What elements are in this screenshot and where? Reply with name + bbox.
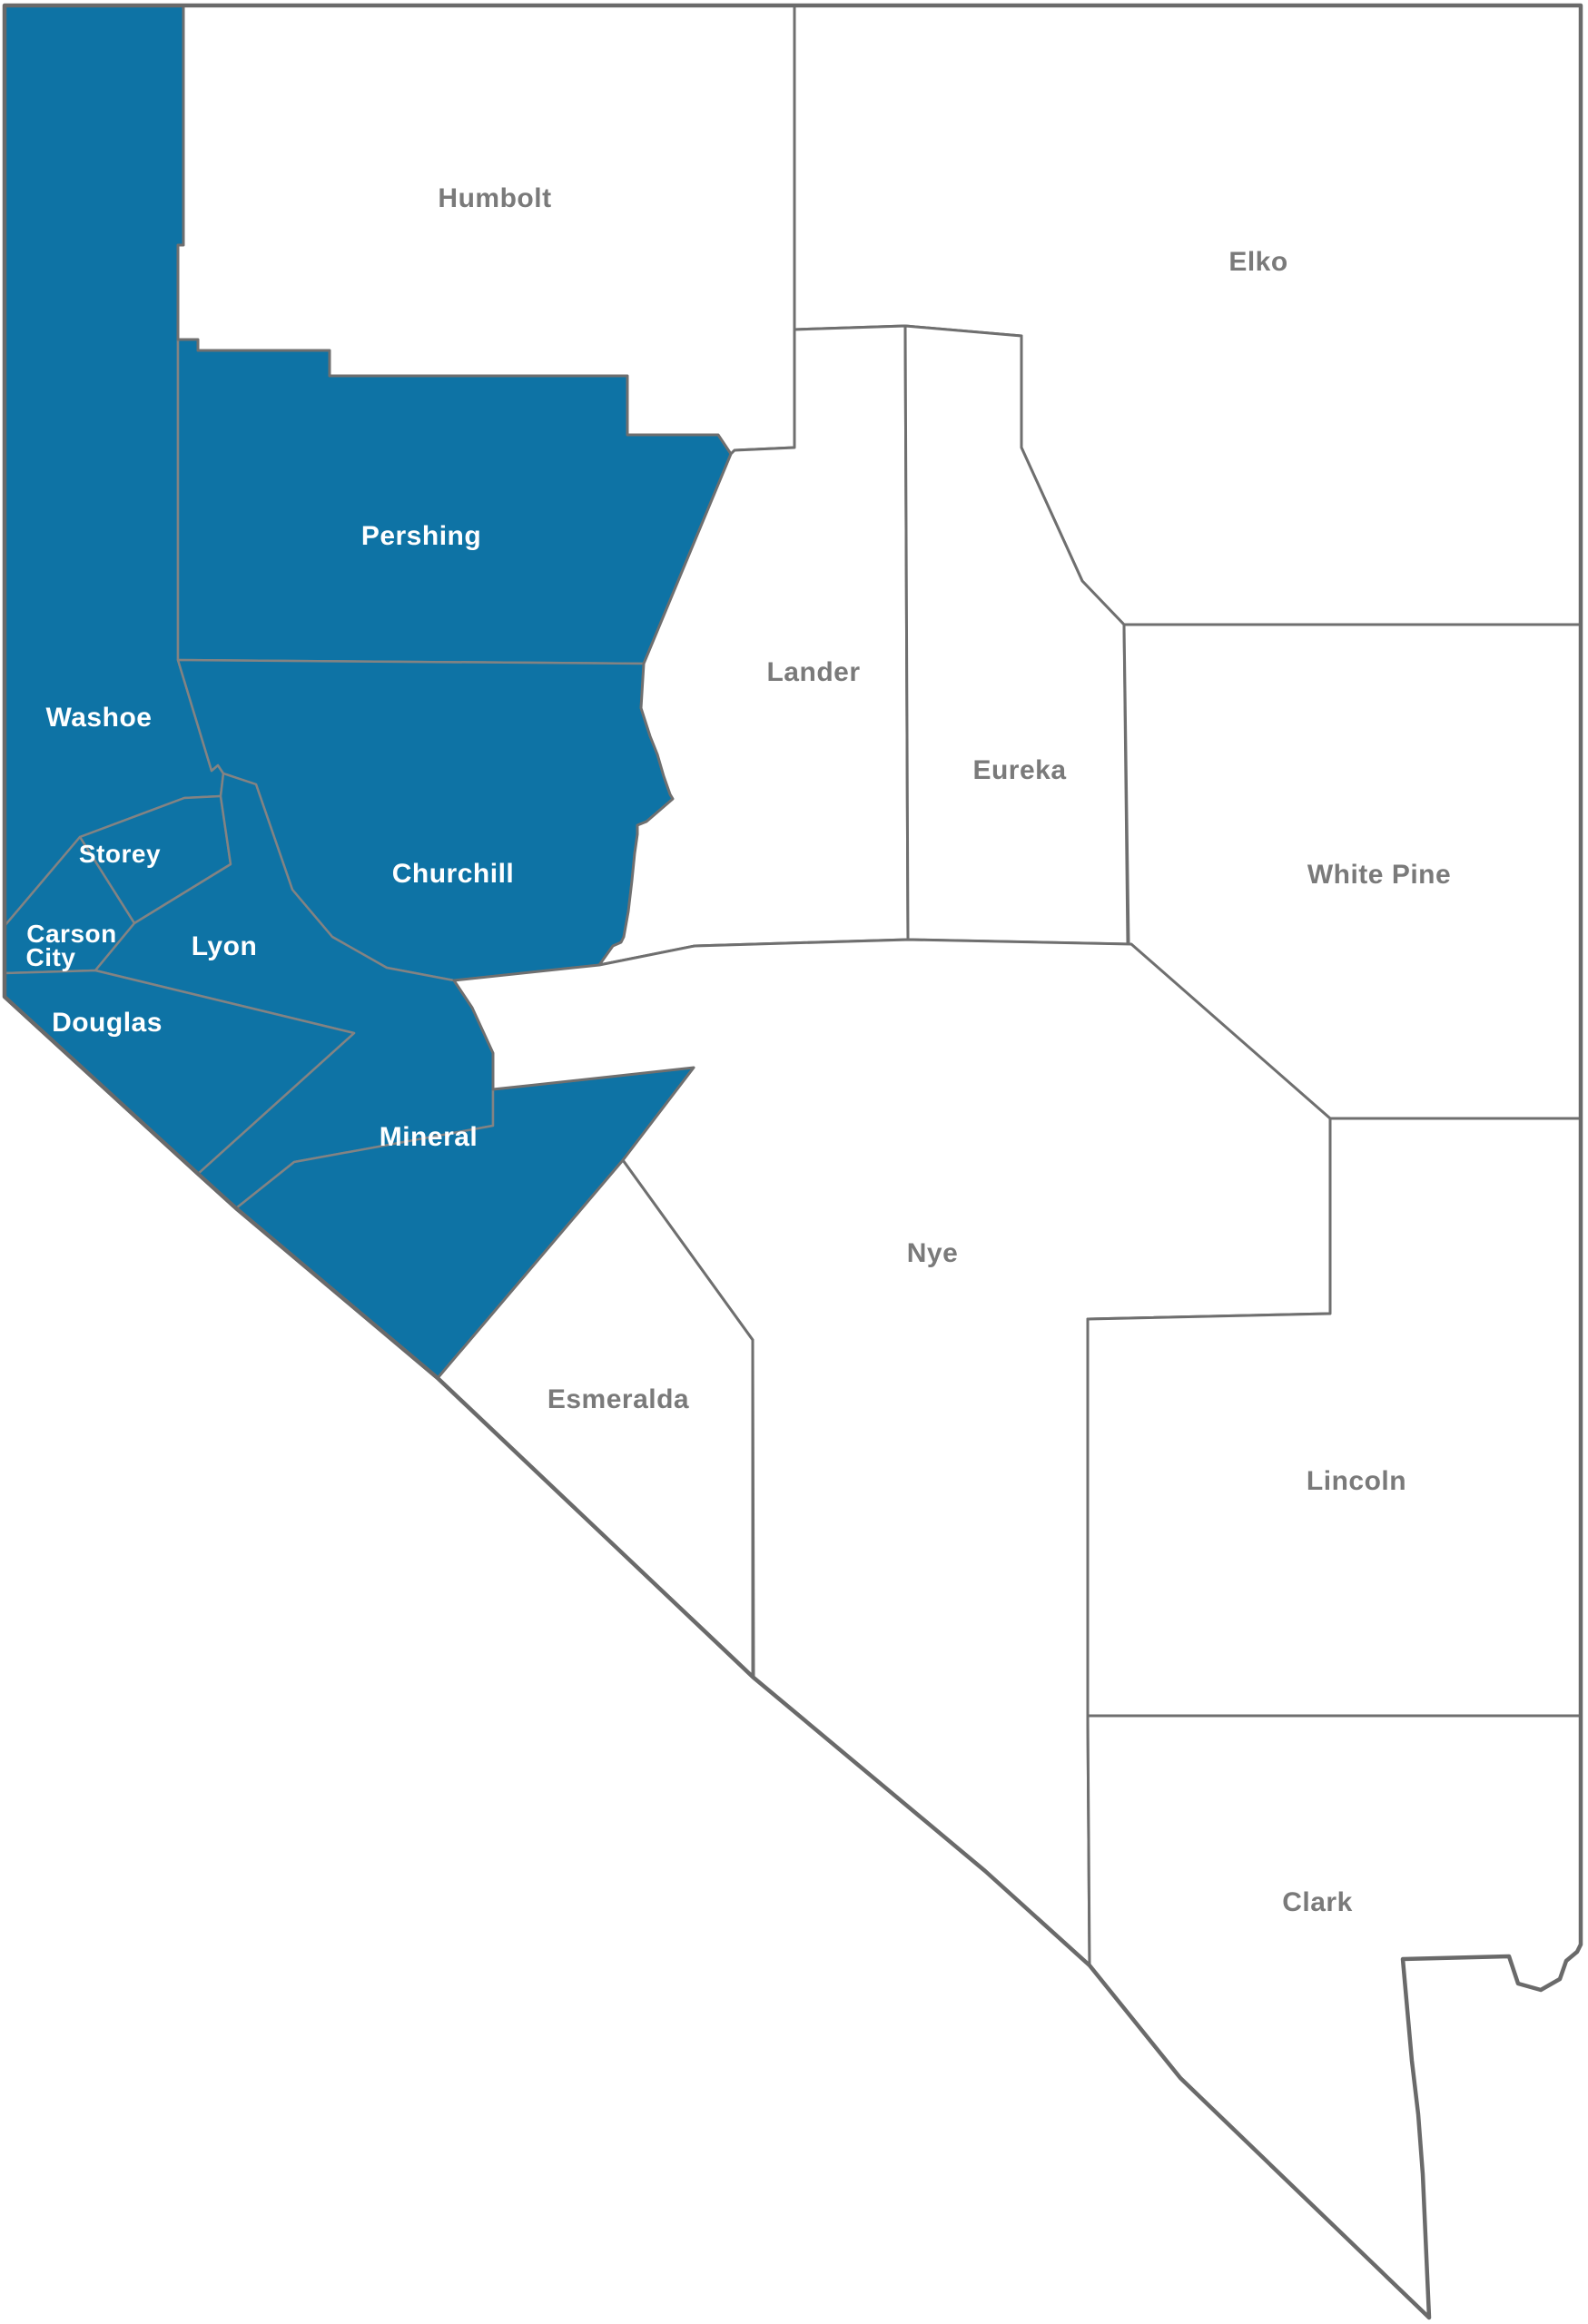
county-label-churchill: Churchill (392, 859, 515, 889)
county-label-pershing: Pershing (361, 521, 481, 551)
county-label-eureka: Eureka (972, 755, 1066, 785)
county-label-lander: Lander (766, 657, 860, 687)
county-label-washoe: Washoe (46, 703, 153, 733)
map-canvas: Washoe Humbolt Elko Pershing Lander Eure… (0, 0, 1588, 2324)
county-label-douglas: Douglas (52, 1008, 163, 1038)
county-label-lyon: Lyon (192, 931, 258, 961)
county-label-white-pine: White Pine (1307, 860, 1451, 890)
county-label-nye: Nye (907, 1238, 959, 1268)
county-label-lincoln: Lincoln (1307, 1466, 1406, 1496)
county-label-esmeralda: Esmeralda (547, 1384, 689, 1414)
county-label-clark: Clark (1282, 1887, 1353, 1917)
county-label-mineral: Mineral (380, 1122, 478, 1152)
nevada-county-map: Washoe Humbolt Elko Pershing Lander Eure… (0, 0, 1588, 2324)
county-label-carson-line2: City (26, 943, 76, 971)
county-label-storey: Storey (79, 840, 161, 868)
county-label-humbolt: Humbolt (438, 183, 551, 213)
county-label-elko: Elko (1228, 247, 1287, 277)
